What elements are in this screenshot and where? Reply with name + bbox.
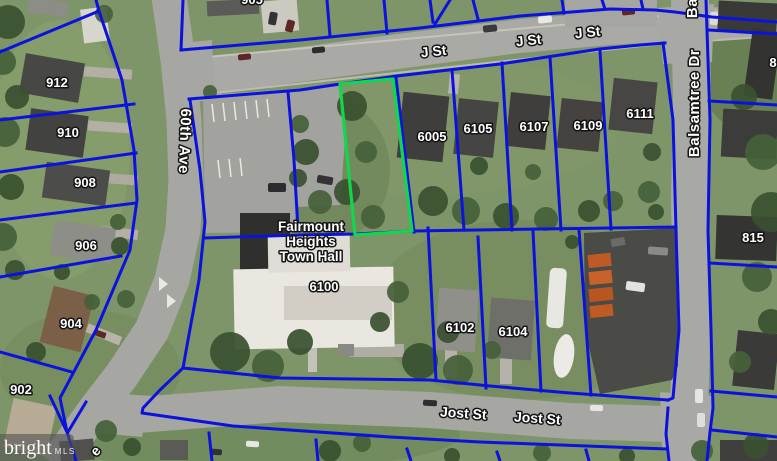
parcel-label-8-partial: 8 bbox=[769, 55, 776, 70]
aerial-parcel-map[interactable]: J St J St J St 60th Ave Balsamtree Dr Ba… bbox=[0, 0, 777, 461]
parcel-label-904: 904 bbox=[60, 316, 82, 331]
parcel-label-6102: 6102 bbox=[446, 320, 475, 335]
town-hall-label-line1: Fairmount bbox=[278, 219, 345, 234]
map-canvas: J St J St J St 60th Ave Balsamtree Dr Ba… bbox=[0, 0, 777, 461]
parcel-label-908: 908 bbox=[74, 175, 96, 190]
street-label-jost-st-2: Jost St bbox=[514, 408, 562, 427]
town-hall-label-line2: Heights bbox=[286, 234, 336, 249]
parcel-label-6104: 6104 bbox=[499, 324, 529, 339]
parcel-label-815: 815 bbox=[742, 230, 764, 245]
street-label-j-st-1: J St bbox=[420, 42, 448, 61]
parcel-label-6105: 6105 bbox=[464, 121, 493, 136]
parcel-label-905-partial: 905 bbox=[241, 0, 263, 7]
parcel-label-6005: 6005 bbox=[418, 129, 447, 144]
parcel-label-6100: 6100 bbox=[310, 279, 339, 294]
parcel-label-906: 906 bbox=[75, 238, 97, 253]
street-label-balsamtree-dr-partial: Balsamtree Dr bbox=[684, 0, 701, 18]
parcel-label-6107: 6107 bbox=[520, 119, 549, 134]
street-label-j-st-2: J St bbox=[515, 31, 543, 50]
watermark-brand: bright bbox=[4, 438, 52, 458]
street-label-60th-ave: 60th Ave bbox=[175, 108, 194, 174]
poi-label-town-hall: Fairmount Heights Town Hall bbox=[278, 219, 345, 264]
parcel-label-6111: 6111 bbox=[626, 106, 654, 121]
street-label-jost-st-1: Jost St bbox=[440, 403, 488, 422]
parcel-label-910: 910 bbox=[57, 125, 79, 140]
parcel-label-902: 902 bbox=[10, 382, 32, 397]
parcel-label-912: 912 bbox=[46, 75, 68, 90]
parcel-label-6109: 6109 bbox=[574, 118, 603, 133]
watermark-suffix: MLS bbox=[55, 447, 76, 456]
bright-mls-watermark: bright MLS bbox=[0, 434, 74, 461]
street-label-balsamtree-dr: Balsamtree Dr bbox=[686, 49, 703, 157]
town-hall-label-line3: Town Hall bbox=[280, 249, 343, 264]
street-label-j-st-3: J St bbox=[574, 23, 602, 42]
